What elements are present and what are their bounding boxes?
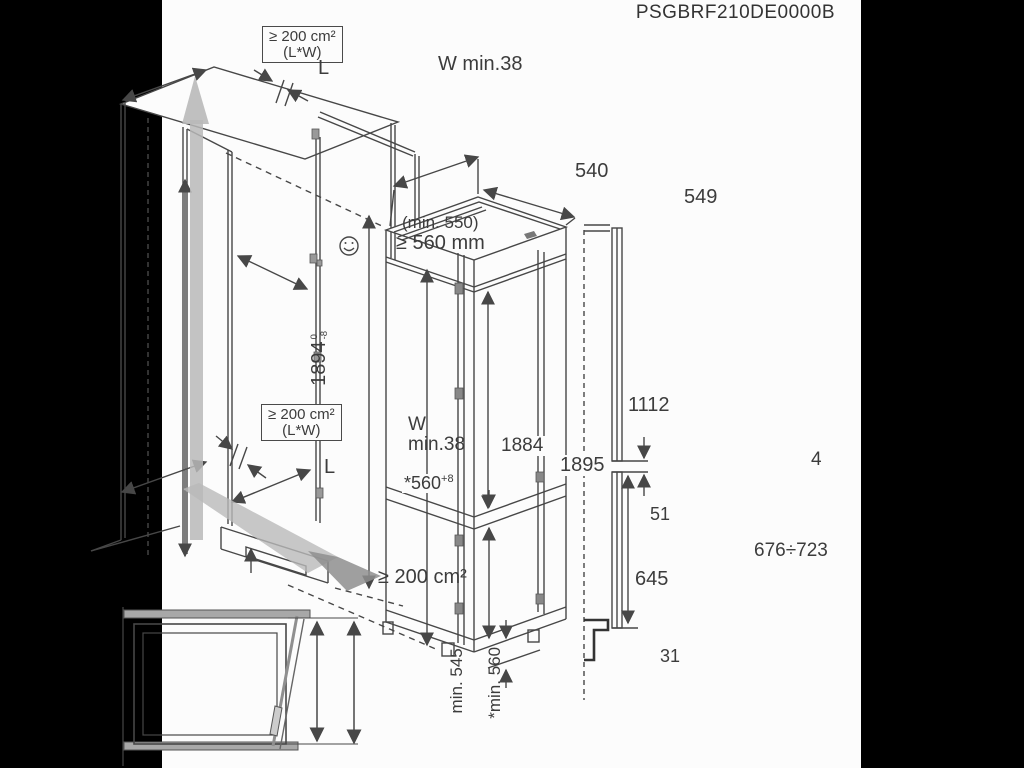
vent-area-mid-line2: (L*W) [268, 423, 335, 439]
appliance-depth-label: 549 [682, 187, 719, 208]
model-number-title: PSGBRF210DE0000B [615, 3, 835, 23]
mid-gap-label: 51 [648, 505, 672, 524]
niche-width-tol: +8 [441, 473, 454, 485]
vent-area-top-box: ≥ 200 cm² (L*W) [262, 26, 343, 63]
gap-bottom-line2: min.38 [408, 435, 465, 455]
depth-note-label: (min. 550) [402, 214, 479, 232]
upper-door-height-label: 1112 [626, 395, 672, 416]
airflow-arrow-icon [182, 76, 209, 540]
airflow-floor-band-icon [183, 483, 381, 591]
niche-height-label: 18940-8 [309, 331, 330, 386]
panel-gap-label: 4 [811, 450, 822, 470]
diagram-page: PSGBRF210DE0000B ≥ 200 cm² (L*W) L W min… [162, 0, 861, 768]
niche-width-base: *560 [404, 473, 441, 493]
gap-top-label: W min.38 [438, 54, 522, 75]
installation-diagram-drawing [0, 0, 1024, 768]
plinth-bracket-icon [584, 620, 608, 660]
appliance-height-label: 1895 [558, 455, 607, 476]
smiley-icon [340, 237, 358, 255]
vent-area-mid-line1: ≥ 200 cm² [268, 407, 335, 423]
screenshot-root: PSGBRF210DE0000B ≥ 200 cm² (L*W) L W min… [0, 0, 1024, 768]
inner-height-label: 1884 [499, 436, 545, 456]
lower-door-height-label: 645 [633, 569, 670, 590]
vent-area-top-line1: ≥ 200 cm² [269, 29, 336, 45]
door-handle-icon [270, 706, 282, 736]
gap-bottom-label: W min.38 [408, 415, 465, 455]
gap-bottom-line1: W [408, 415, 465, 435]
top-view-depth-min-label: min. 545 [448, 648, 466, 713]
niche-height-tol-lower: -8 [320, 331, 330, 339]
top-view-depth-door-label: *min. 560 [486, 647, 504, 719]
vent-area-mid-box: ≥ 200 cm² (L*W) [261, 404, 342, 441]
niche-height-value: 1894 [308, 341, 330, 386]
bottom-clearance-label: 31 [658, 647, 682, 666]
niche-width-label: *560+8 [402, 474, 456, 493]
depth-min-label: ≥ 560 mm [396, 233, 485, 254]
cabinet-top-view [123, 607, 358, 766]
panel-range-label: 676÷723 [752, 541, 830, 561]
vent-bottom-label: ≥ 200 cm² [378, 567, 467, 588]
appliance-width-label: 540 [573, 161, 610, 182]
length-bottom-label: L [324, 457, 335, 478]
length-top-label: L [318, 58, 329, 79]
